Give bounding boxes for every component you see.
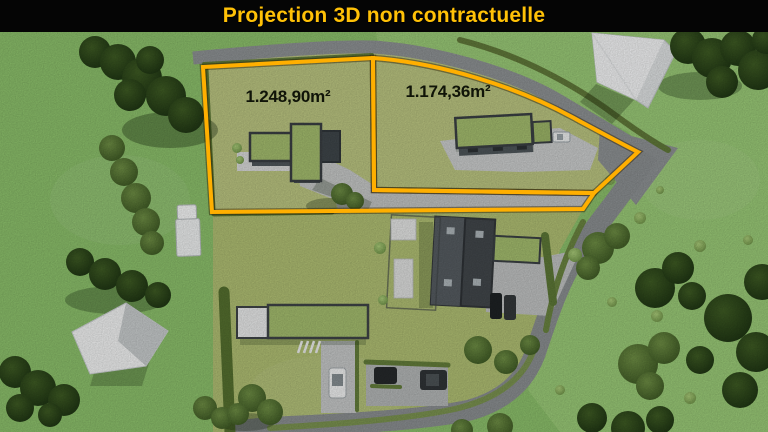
projection-3d-image: Projection 3D non contractuelle 1.248,90…: [0, 0, 768, 432]
parcel1-area-label: 1.248,90m²: [246, 87, 331, 107]
title-banner: Projection 3D non contractuelle: [0, 0, 768, 32]
aerial-render: [0, 0, 768, 432]
parcel2-area-label: 1.174,36m²: [406, 82, 491, 102]
page-title: Projection 3D non contractuelle: [223, 4, 545, 28]
grass-texture: [0, 0, 768, 432]
